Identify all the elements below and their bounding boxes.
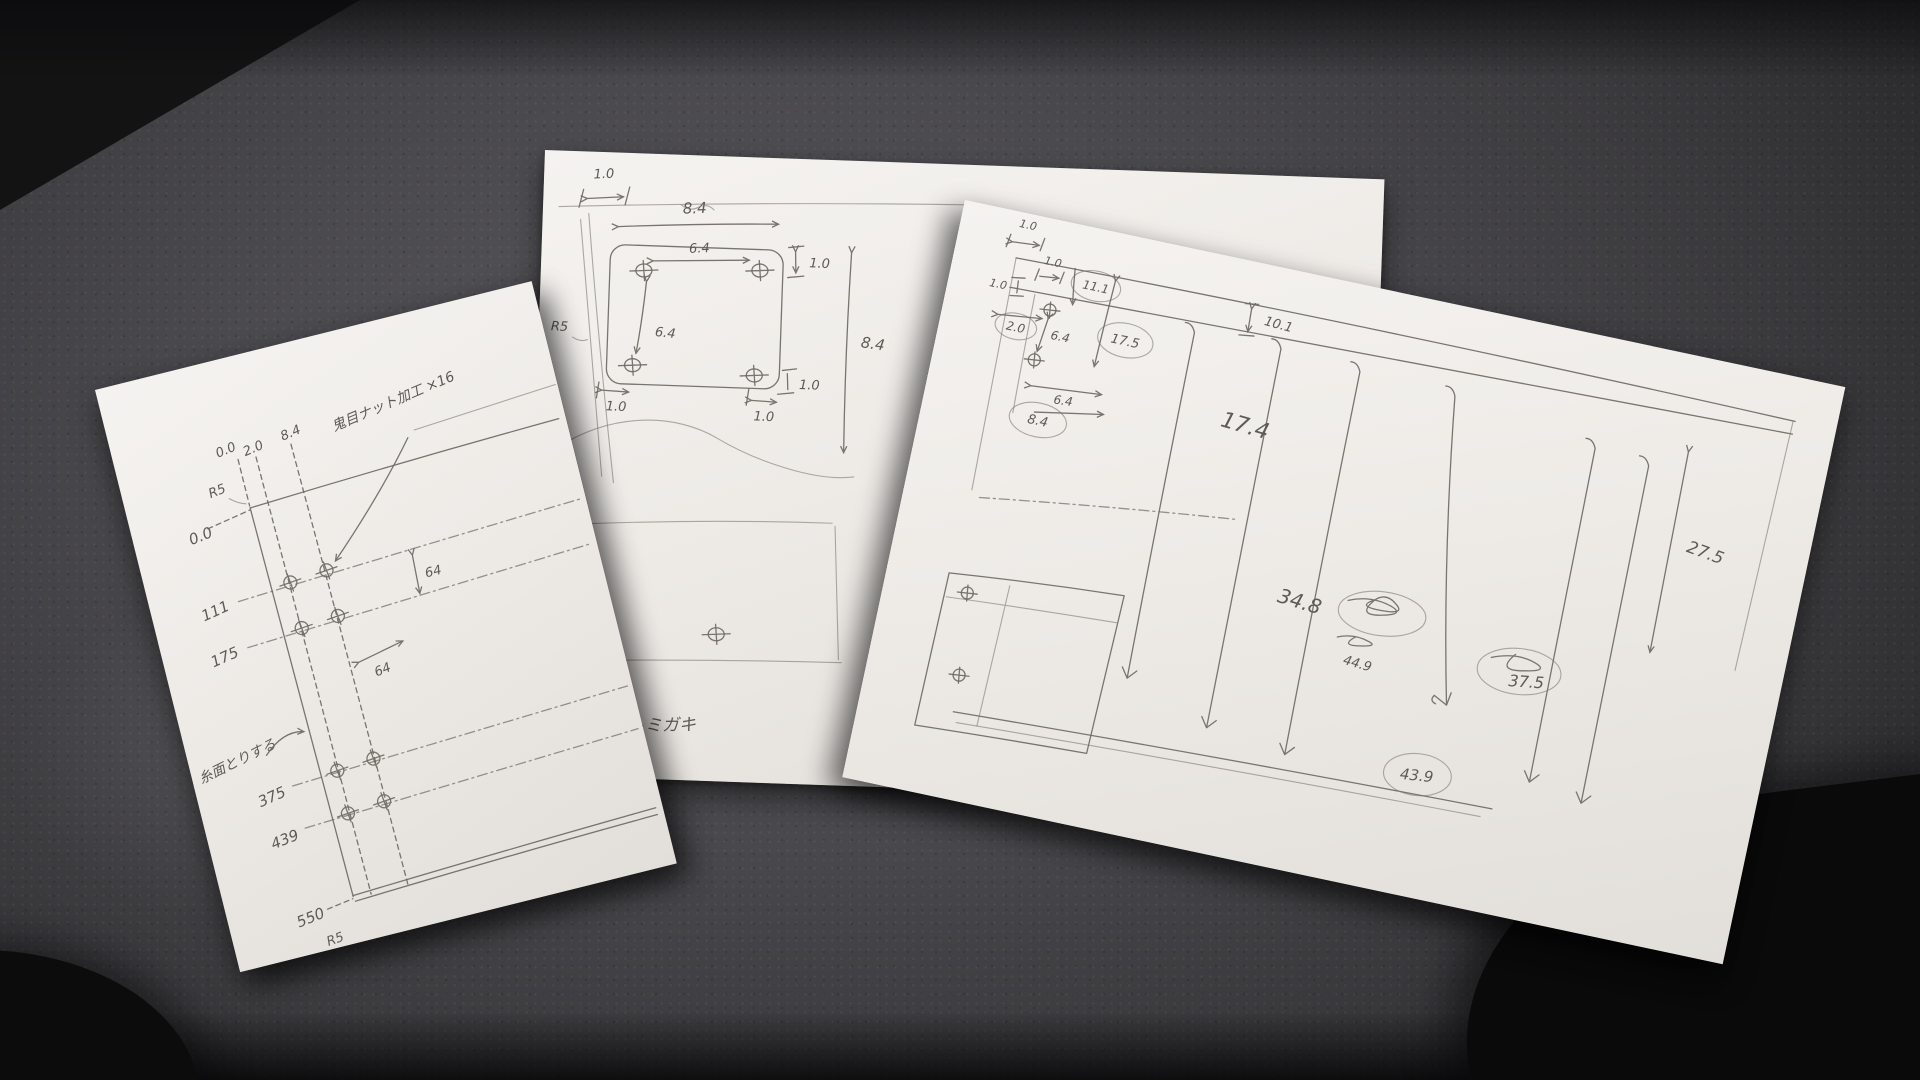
table-shadow-top	[0, 0, 1920, 80]
dim-label-37-5: 37.5	[1508, 671, 1545, 692]
scribble-blob-circle	[1336, 587, 1429, 641]
tall-line-1	[1110, 322, 1209, 679]
chamfer-note: 糸面とりする	[196, 736, 279, 787]
part-bottom-edge	[350, 808, 660, 902]
dim-label-11-1: 11.1	[1081, 277, 1110, 296]
small-scribble	[1336, 633, 1373, 649]
col-line-2-0	[256, 456, 371, 896]
dim-arrow-margin	[1012, 240, 1039, 248]
dim-tick-bl	[596, 382, 599, 398]
lower-rect-top	[588, 515, 832, 533]
plate-band-line	[1010, 269, 1793, 453]
right-sketch-drawing: 1.0 1.0 1.0 6.4 2.0 11.1 17.5 6.4 8.4	[842, 200, 1845, 964]
dim-label-6-4-v: 6.4	[1049, 328, 1071, 346]
dim-arrow-1-0-brv	[787, 374, 789, 390]
dim-label-6-4-h: 6.4	[1053, 393, 1074, 410]
dim-label-1-0-br: 1.0	[753, 409, 774, 425]
dim-tick-br	[746, 389, 749, 405]
radius-label: R5	[551, 319, 569, 335]
dim-arrow-1-0-br	[751, 400, 776, 402]
dim-label-27-5: 27.5	[1684, 537, 1726, 569]
row-label-550: 550	[294, 904, 327, 931]
dim-label-2-0: 2.0	[1005, 318, 1027, 336]
nut-note: 鬼目ナット加工 ×16	[329, 369, 457, 435]
dim-label-left-small: 1.0	[988, 276, 1008, 292]
dim-arrow-1-0-topleft	[587, 196, 623, 200]
dim-arrow-8-4-height	[843, 253, 852, 453]
wavy-line	[558, 417, 856, 478]
tall-line-3	[1268, 362, 1375, 757]
dim-label-margin: 1.0	[1018, 217, 1038, 233]
photo-of-sketches-on-table: 1.0 8.4 6.4 6.4 1.0 8.4	[0, 0, 1920, 1080]
dim-ticks-margin	[1006, 231, 1045, 254]
dim-line-left-small	[1016, 281, 1019, 293]
dim-arrow-6-4-v	[1037, 318, 1048, 352]
lower-left-rect	[915, 559, 1124, 762]
dim-label-1-0-topleft: 1.0	[593, 167, 614, 183]
dim-arrow-6-4-h	[653, 257, 749, 264]
dim-label-8-4-height: 8.4	[860, 333, 886, 354]
dim-label-64-h: 64	[372, 660, 393, 680]
dim-label-44-9: 44.9	[1341, 653, 1373, 675]
nut-note-leader	[311, 438, 433, 561]
dim-label-17-5: 17.5	[1109, 332, 1140, 353]
col-line-0	[238, 459, 250, 506]
plate-top-edge-line	[559, 191, 973, 221]
dim-label-6-4-h: 6.4	[689, 241, 710, 257]
row-label-375: 375	[255, 783, 288, 811]
tall-line-6	[1566, 456, 1662, 805]
dim-label-1-0-brv: 1.0	[799, 378, 820, 394]
dim-label-43-9: 43.9	[1399, 765, 1434, 786]
row-line-0	[206, 510, 252, 529]
dim-label-17-4: 17.4	[1218, 408, 1272, 446]
dim-arrow-6-4-v	[636, 281, 647, 353]
dim-arrow-8-4-width	[618, 219, 778, 233]
col-label-2-0: 2.0	[241, 438, 266, 460]
center-dashed-line	[979, 466, 1236, 551]
radius-squiggle-top	[229, 495, 246, 507]
col-label-8-4: 8.4	[278, 423, 303, 445]
plate-left-edge-line-2	[572, 219, 611, 476]
row-label-175: 175	[208, 643, 241, 671]
row-line-550	[327, 899, 354, 909]
part-left-edge	[250, 507, 353, 899]
dim-arrow-64-h	[356, 641, 405, 662]
row-label-439: 439	[268, 826, 301, 853]
plate-bottom-edge	[953, 695, 1492, 825]
row-line-439	[301, 729, 642, 828]
lower-rect-right	[830, 526, 843, 659]
dim-arrow-inner	[1040, 274, 1059, 280]
radius-label-bottom: R5	[325, 930, 346, 950]
tall-line-2	[1190, 339, 1296, 730]
dim-label-8-4: 8.4	[1026, 412, 1049, 431]
radius-label-top: R5	[207, 482, 229, 502]
dim-label-64-v: 64	[424, 563, 444, 582]
row-label-111: 111	[199, 597, 232, 625]
plate-right-edge	[1735, 421, 1793, 671]
dim-arrow-64-v	[410, 555, 421, 593]
plate-left-edge	[967, 258, 1021, 490]
tall-line-4	[1381, 386, 1514, 707]
dim-label-inner: 1.0	[1043, 254, 1063, 270]
dim-label-1-0-right: 1.0	[809, 256, 830, 272]
row-line-111	[234, 499, 585, 602]
paper-right-sketch: 1.0 1.0 1.0 6.4 2.0 11.1 17.5 6.4 8.4	[842, 200, 1845, 964]
row-line-375	[289, 686, 632, 786]
plate-left-edge-line	[579, 214, 622, 483]
dim-arrow-10-1	[1247, 309, 1253, 332]
dim-arrow-1-0-right	[795, 252, 797, 273]
dim-label-1-0-bl: 1.0	[605, 399, 626, 415]
dim-arrow-1-0-bl	[602, 390, 629, 392]
dim-label-10-1: 10.1	[1263, 314, 1295, 336]
radius-squiggle	[572, 337, 587, 341]
dim-label-6-4-v: 6.4	[654, 325, 676, 342]
col-label-0-0: 0.0	[214, 440, 239, 462]
